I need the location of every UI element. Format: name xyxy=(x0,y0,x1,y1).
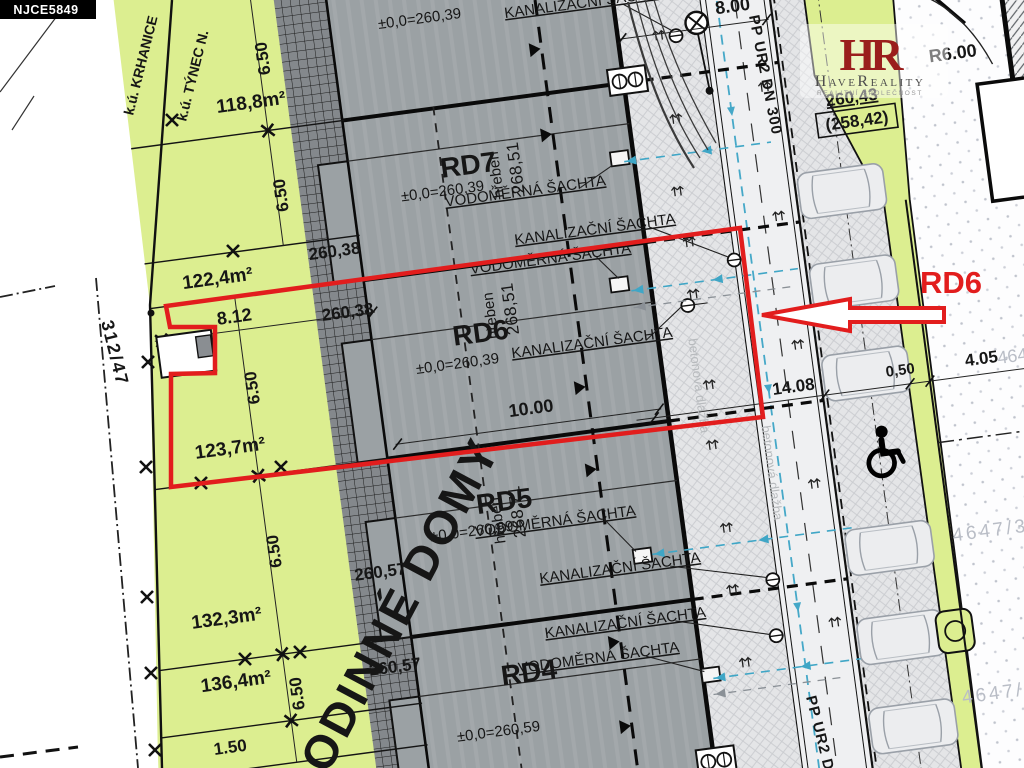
site-plan: ±0,0=260,39 ±0,0=260,39 ±0,0=260,39 ±0,0… xyxy=(0,0,1024,768)
water-shaft-symbol xyxy=(696,745,737,768)
rd6-callout-label: RD6 xyxy=(920,265,982,300)
site-plan-drawing: ±0,0=260,39 ±0,0=260,39 ±0,0=260,39 ±0,0… xyxy=(0,0,1024,768)
havereality-logo: HR HaveReality REALITNÍ SPOLEČNOST xyxy=(800,24,948,98)
badge-text: NJCE5849 xyxy=(13,3,78,17)
verge-bulge xyxy=(935,608,976,654)
logo-tagline: REALITNÍ SPOLEČNOST xyxy=(817,88,923,97)
water-shaft-symbol xyxy=(607,65,648,96)
logo-name: HaveReality xyxy=(815,73,926,90)
watermark-badge: NJCE5849 xyxy=(0,0,96,19)
